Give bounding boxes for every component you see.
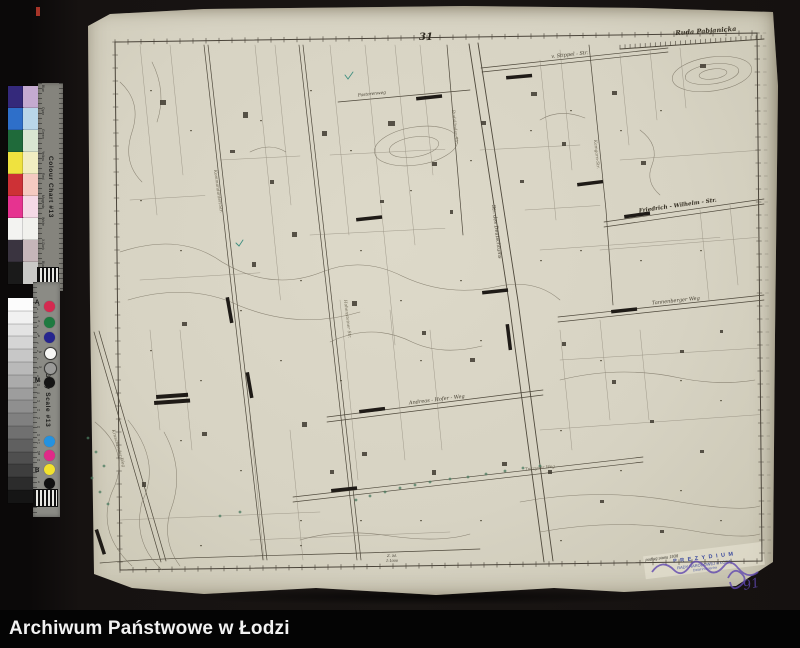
censor-bar: [226, 297, 234, 323]
tree-mark: [485, 473, 488, 476]
tree-mark: [87, 437, 90, 440]
plot-line: [330, 149, 445, 155]
building: [548, 470, 552, 474]
street-label: Kruschender Weg: [110, 428, 126, 468]
plot-mark: [150, 90, 152, 91]
building: [612, 91, 617, 95]
street-labels: Ruda Pabjanickav. Stippel - Str.Pastoren…: [110, 25, 737, 472]
plot-mark: [620, 130, 622, 131]
plot-line: [640, 330, 649, 420]
archive-caption-bar: Archiwum Państwowe w Łodzi: [0, 610, 800, 648]
tree-mark: [219, 515, 222, 518]
handwritten-number: 91: [742, 576, 761, 594]
archive-name: Archiwum Państwowe w Łodzi: [9, 618, 290, 640]
building: [330, 470, 334, 474]
plot-mark: [530, 130, 532, 131]
plot-mark: [480, 340, 482, 341]
plot-mark: [720, 400, 722, 401]
plot-line: [540, 60, 556, 220]
plot-mark: [620, 470, 622, 471]
building: [481, 121, 486, 125]
plot-line: [275, 45, 291, 205]
building: [562, 142, 566, 146]
plot-mark: [680, 490, 682, 491]
street-label: Kommandanten-Str.: [212, 169, 223, 214]
censor-bar: [359, 407, 385, 414]
plot-mark: [560, 430, 562, 431]
plot-mark: [560, 540, 562, 541]
plot-mark: [570, 110, 572, 111]
plot-line: [150, 330, 160, 430]
plot-mark: [720, 520, 722, 521]
plot-line: [430, 330, 442, 450]
building: [230, 150, 235, 153]
plot-line: [560, 348, 760, 360]
vegetation-marks: [87, 437, 542, 518]
tree-mark: [467, 476, 470, 479]
building: [432, 470, 436, 475]
plot-line: [600, 320, 610, 420]
censor-bar: [154, 398, 190, 405]
plot-line: [540, 237, 720, 250]
plot-line: [395, 45, 415, 245]
plot-mark: [240, 310, 242, 311]
building: [502, 462, 507, 466]
plot-line: [525, 206, 600, 211]
plot-number-marks: [140, 90, 722, 546]
tree-mark: [107, 503, 110, 506]
building: [470, 358, 475, 362]
plot-line: [140, 273, 260, 280]
plot-line: [560, 330, 572, 450]
plot-line: [255, 45, 281, 300]
plot-mark: [300, 520, 302, 521]
building: [182, 322, 187, 326]
plot-mark: [700, 250, 702, 251]
plot-mark: [340, 380, 342, 381]
building: [450, 210, 453, 214]
scale-value: 1:1000: [386, 559, 399, 563]
plot-mark: [300, 280, 302, 281]
plot-mark: [360, 520, 362, 521]
building: [700, 450, 704, 453]
plot-mark: [400, 300, 402, 301]
sheet-number: 31: [419, 32, 433, 43]
building: [612, 380, 616, 384]
plot-mark: [350, 150, 352, 151]
building: [352, 301, 357, 306]
plot-mark: [180, 440, 182, 441]
tree-mark: [399, 487, 402, 490]
plot-mark: [580, 250, 582, 251]
building: [322, 131, 327, 136]
plot-mark: [280, 360, 282, 361]
censor-bar: [95, 529, 106, 555]
building: [600, 500, 604, 503]
street-label: Pastorenweg: [357, 91, 387, 99]
plot-line: [700, 210, 709, 300]
plot-line: [620, 55, 629, 145]
plot-line: [650, 50, 657, 120]
plot-line: [600, 237, 760, 250]
plot-line: [130, 196, 205, 201]
tree-mark: [429, 481, 432, 484]
plot-line: [620, 150, 760, 160]
plot-line: [140, 45, 157, 215]
street-label: Friedrich - Wilhelm - Str.: [638, 198, 718, 215]
plot-mark: [260, 120, 262, 121]
building: [562, 342, 566, 346]
plot-line: [330, 45, 349, 235]
plot-mark: [150, 350, 152, 351]
building: [720, 330, 723, 333]
building: [160, 100, 166, 105]
tree-mark: [95, 451, 98, 454]
building: [700, 64, 706, 68]
tree-mark: [414, 484, 417, 487]
plot-line: [290, 430, 303, 560]
building: [243, 112, 248, 118]
plot-mark: [200, 545, 202, 546]
censor-bar: [482, 288, 508, 294]
tree-mark: [103, 465, 106, 468]
scale-label: Z. M.: [386, 553, 397, 558]
building: [270, 180, 274, 184]
tree-mark: [239, 511, 242, 514]
censor-bar: [506, 74, 532, 80]
plot-mark: [360, 250, 362, 251]
plot-mark: [680, 380, 682, 381]
street-label: Tannenberger Weg: [652, 296, 701, 307]
censor-bar: [156, 393, 188, 399]
plot-mark: [460, 280, 462, 281]
plot-mark: [410, 190, 412, 191]
censor-bar: [611, 307, 637, 313]
street-label: Rudaländer Str.: [450, 109, 459, 145]
censor-bar: [577, 180, 603, 187]
plot-mark: [600, 360, 602, 361]
building: [531, 92, 537, 96]
tree-mark: [91, 477, 94, 480]
building: [292, 232, 297, 237]
tree-mark: [384, 491, 387, 494]
plot-mark: [200, 380, 202, 381]
street-label: Ruda Pabjanicka: [674, 25, 736, 37]
censored-name-bars: [95, 74, 651, 555]
tree-mark: [99, 491, 102, 494]
plot-mark: [640, 260, 642, 261]
building: [202, 432, 207, 436]
street-label: Str. des Deutschtums: [490, 205, 503, 260]
plot-line: [170, 45, 183, 175]
plot-mark: [420, 360, 422, 361]
plot-line: [310, 228, 445, 235]
censor-bar: [506, 324, 513, 350]
building: [362, 452, 367, 456]
plot-line: [220, 156, 300, 160]
plot-line: [390, 310, 405, 460]
plot-line: [365, 45, 395, 345]
building: [660, 530, 664, 533]
building: [641, 161, 646, 165]
tree-mark: [355, 499, 358, 502]
plot-mark: [300, 545, 302, 546]
plot-mark: [470, 160, 472, 161]
tree-mark: [449, 478, 452, 481]
plot-mark: [480, 520, 482, 521]
plot-line: [250, 420, 264, 560]
plot-mark: [140, 200, 142, 201]
plot-line: [730, 205, 738, 285]
building: [302, 422, 307, 427]
building: [388, 121, 395, 126]
plot-mark: [420, 520, 422, 521]
building: [680, 350, 684, 353]
building: [432, 162, 437, 166]
plot-mark: [540, 260, 542, 261]
tree-mark: [504, 470, 507, 473]
plot-mark: [310, 90, 312, 91]
censor-bar: [416, 94, 442, 100]
plot-line: [180, 330, 192, 450]
censor-bar: [356, 215, 382, 221]
plot-mark: [660, 110, 662, 111]
plot-mark: [190, 130, 192, 131]
building: [520, 180, 524, 183]
building: [252, 262, 256, 267]
tree-mark: [369, 495, 372, 498]
plot-mark: [240, 470, 242, 471]
plot-mark: [180, 250, 182, 251]
building: [142, 482, 146, 487]
building: [650, 420, 654, 423]
scanned-archive-photo: Colour Chart #13 BlueCyanGreenYellowRedM…: [0, 0, 800, 648]
building: [380, 200, 384, 203]
map-drawing: Ruda Pabjanickav. Stippel - Str.Pastoren…: [0, 0, 800, 648]
building: [422, 331, 426, 335]
